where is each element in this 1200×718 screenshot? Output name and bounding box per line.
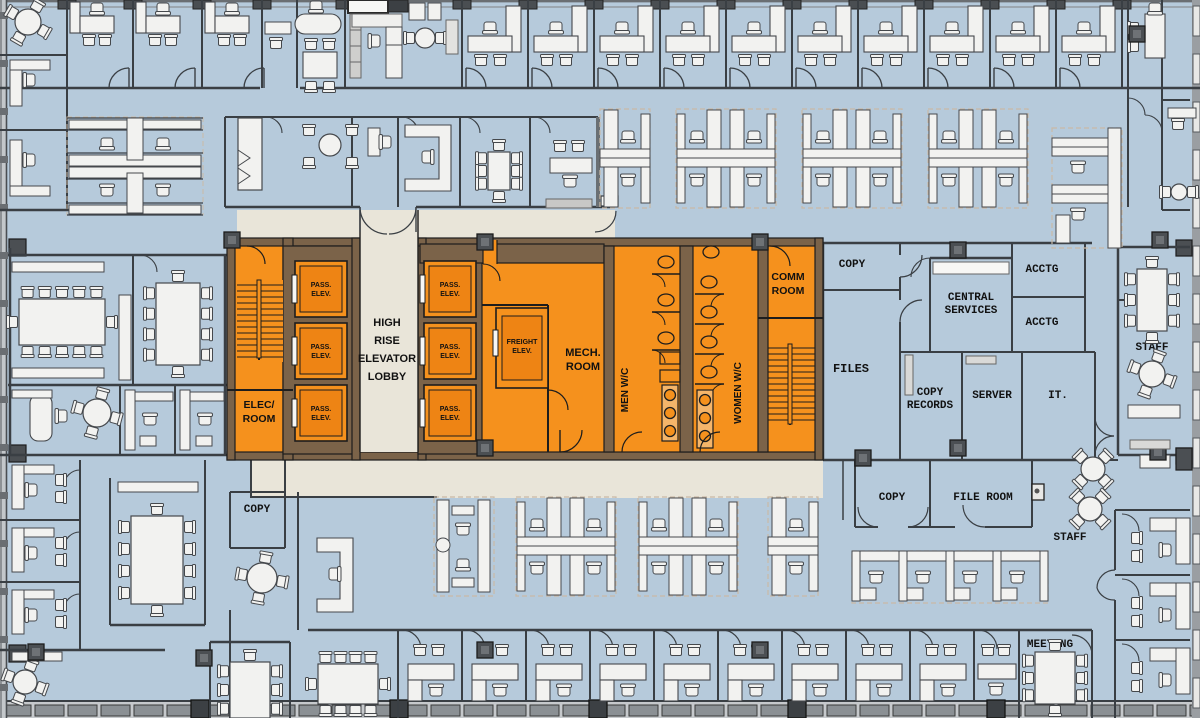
svg-text:ACCTG: ACCTG — [1025, 317, 1058, 329]
svg-text:COMM: COMM — [771, 271, 804, 283]
svg-text:PASS.: PASS. — [440, 406, 461, 413]
svg-text:FILES: FILES — [833, 362, 869, 376]
svg-text:PASS.: PASS. — [440, 282, 461, 289]
svg-text:ROOM: ROOM — [243, 413, 276, 425]
svg-text:ROOM: ROOM — [772, 285, 805, 297]
svg-text:ROOM: ROOM — [566, 361, 600, 373]
svg-text:COPY: COPY — [879, 492, 906, 504]
svg-text:HIGH: HIGH — [373, 317, 401, 329]
svg-text:PASS.: PASS. — [311, 282, 332, 289]
svg-text:ELEV.: ELEV. — [440, 415, 460, 422]
svg-text:SERVICES: SERVICES — [945, 305, 998, 317]
svg-text:CENTRAL: CENTRAL — [948, 292, 995, 304]
svg-text:COPY: COPY — [917, 387, 944, 399]
svg-text:PASS.: PASS. — [311, 406, 332, 413]
svg-text:STAFF: STAFF — [1053, 532, 1086, 544]
svg-text:WOMEN W/C: WOMEN W/C — [733, 362, 744, 424]
svg-text:PASS.: PASS. — [440, 344, 461, 351]
svg-text:IT.: IT. — [1048, 390, 1068, 402]
svg-text:COPY: COPY — [839, 259, 866, 271]
svg-text:ELEVATOR: ELEVATOR — [358, 353, 416, 365]
svg-text:RECORDS: RECORDS — [907, 400, 954, 412]
svg-text:ELEC/: ELEC/ — [244, 399, 275, 411]
svg-text:FILE ROOM: FILE ROOM — [953, 492, 1013, 504]
svg-text:PASS.: PASS. — [311, 344, 332, 351]
svg-text:ACCTG: ACCTG — [1025, 264, 1058, 276]
svg-text:COPY: COPY — [244, 504, 271, 516]
svg-text:ELEV.: ELEV. — [311, 291, 331, 298]
svg-text:RISE: RISE — [374, 335, 400, 347]
svg-text:ELEV.: ELEV. — [311, 353, 331, 360]
svg-text:LOBBY: LOBBY — [368, 371, 407, 383]
svg-text:FREIGHT: FREIGHT — [507, 339, 538, 346]
svg-text:ELEV.: ELEV. — [512, 348, 532, 355]
svg-text:MECH.: MECH. — [565, 347, 600, 359]
svg-text:SERVER: SERVER — [972, 390, 1012, 402]
svg-text:MEN W/C: MEN W/C — [620, 368, 631, 412]
svg-text:ELEV.: ELEV. — [440, 291, 460, 298]
svg-text:ELEV.: ELEV. — [311, 415, 331, 422]
svg-text:ELEV.: ELEV. — [440, 353, 460, 360]
